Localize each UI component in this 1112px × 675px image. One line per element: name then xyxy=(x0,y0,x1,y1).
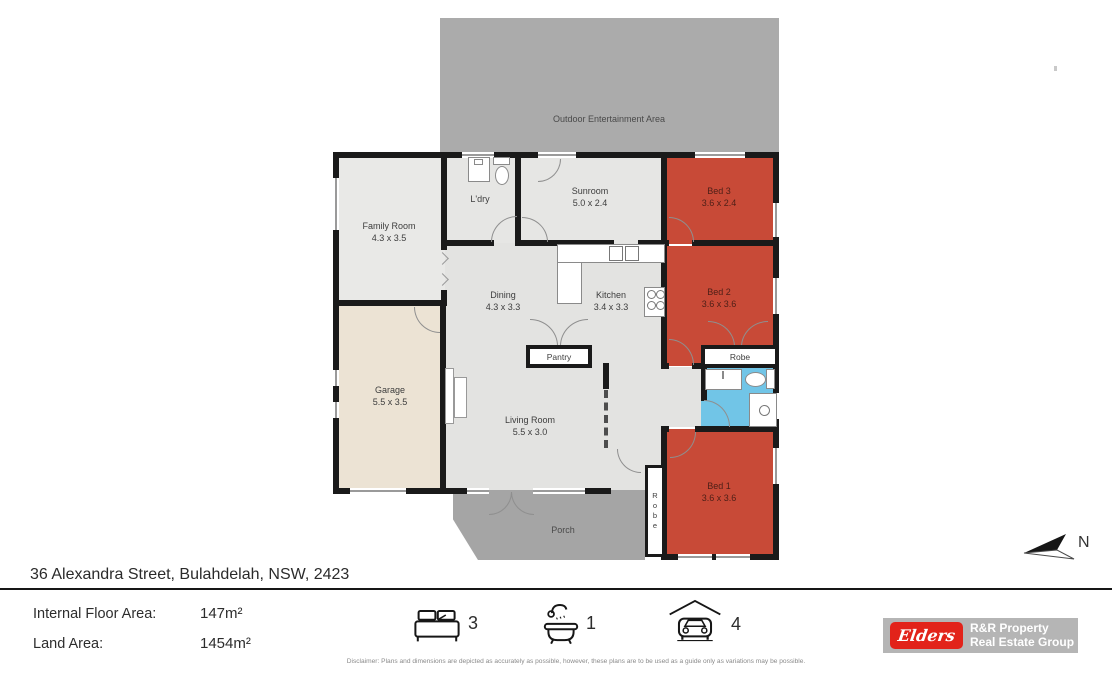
stove-burner-icon xyxy=(647,290,656,299)
stove-burner-icon xyxy=(656,290,665,299)
internal-floor-area-value: 147m² xyxy=(200,605,243,622)
robe-strip-bed1: Robe xyxy=(645,465,665,557)
bath-count: 1 xyxy=(586,613,596,634)
dashed-opening xyxy=(604,390,608,448)
wall-segment xyxy=(441,290,447,306)
pantry-label: Pantry xyxy=(547,352,572,362)
window xyxy=(773,278,779,314)
toilet-icon xyxy=(745,372,766,387)
artifact-dot xyxy=(1054,66,1057,71)
divider-line xyxy=(0,588,1112,590)
room-label-bed3: Bed 33.6 x 2.4 xyxy=(702,185,737,209)
kitchen-sink-icon xyxy=(609,246,623,261)
window xyxy=(716,554,750,560)
bath-icon xyxy=(543,600,579,646)
room-porch xyxy=(453,490,645,560)
pantry-box: Pantry xyxy=(526,345,592,368)
room-label-sunroom: Sunroom5.0 x 2.4 xyxy=(572,185,609,209)
land-area-value: 1454m² xyxy=(200,635,251,652)
window xyxy=(695,152,745,158)
window xyxy=(533,488,585,494)
robe-label: Robe xyxy=(730,352,750,362)
toilet-icon xyxy=(493,157,510,165)
room-label-laundry: L'dry xyxy=(470,193,489,205)
wall-segment xyxy=(603,363,609,389)
room-outdoor-entertainment xyxy=(440,18,779,154)
fireplace xyxy=(454,377,467,418)
window xyxy=(333,178,339,230)
wall-segment xyxy=(661,152,667,246)
window xyxy=(538,152,576,158)
elders-logo: Elders R&R Property Real Estate Group xyxy=(883,618,1078,653)
address: 36 Alexandra Street, Bulahdelah, NSW, 24… xyxy=(30,566,349,584)
north-arrow-icon xyxy=(1022,528,1080,562)
agency-name-line1: R&R Property xyxy=(970,621,1049,635)
agency-name-line2: Real Estate Group xyxy=(970,635,1074,649)
car-count: 4 xyxy=(731,614,741,635)
wall-segment xyxy=(585,488,611,494)
room-label-living: Living Room5.5 x 3.0 xyxy=(505,414,555,438)
stove-burner-icon xyxy=(656,301,665,310)
stove-burner-icon xyxy=(647,301,656,310)
wall-segment xyxy=(445,488,467,494)
floor-plan-page: Pantry Robe Robe Outdoor Entertainment A… xyxy=(0,0,1112,675)
north-label: N xyxy=(1078,534,1090,552)
window xyxy=(773,203,779,237)
vanity-tap-icon xyxy=(722,371,724,379)
room-label-family: Family Room4.3 x 3.5 xyxy=(362,220,415,244)
toilet-icon xyxy=(766,369,775,389)
bed-count: 3 xyxy=(468,613,478,634)
window xyxy=(350,488,406,494)
fireplace xyxy=(445,368,454,424)
wall-segment xyxy=(441,240,494,246)
internal-floor-area-label: Internal Floor Area: xyxy=(33,606,156,622)
kitchen-bench xyxy=(557,262,582,304)
window xyxy=(333,370,339,386)
room-label-porch: Porch xyxy=(551,524,575,536)
bed-icon xyxy=(413,608,461,646)
window xyxy=(467,488,489,494)
disclaimer: Disclaimer: Plans and dimensions are dep… xyxy=(340,658,812,665)
compass: N xyxy=(1022,528,1102,564)
car-icon xyxy=(668,598,722,646)
room-label-bed2: Bed 23.6 x 3.6 xyxy=(702,286,737,310)
wall-segment xyxy=(333,300,445,306)
robe-vertical-label: Robe xyxy=(651,491,660,531)
window xyxy=(678,554,712,560)
shower-drain-icon xyxy=(759,405,770,416)
window xyxy=(333,402,339,418)
room-label-garage: Garage5.5 x 3.5 xyxy=(373,384,408,408)
kitchen-sink-icon xyxy=(625,246,639,261)
laundry-tub-icon xyxy=(474,159,483,165)
window xyxy=(773,448,779,484)
wall-segment xyxy=(661,363,669,369)
room-label-kitchen: Kitchen3.4 x 3.3 xyxy=(594,289,629,313)
elders-wordmark: Elders xyxy=(890,622,963,649)
toilet-icon xyxy=(495,166,509,185)
land-area-label: Land Area: xyxy=(33,636,103,652)
wall-segment xyxy=(692,240,779,246)
room-label-dining: Dining4.3 x 3.3 xyxy=(486,289,521,313)
room-label-bed1: Bed 13.6 x 3.6 xyxy=(702,480,737,504)
robe-box-bed2: Robe xyxy=(701,345,779,368)
wall-segment xyxy=(333,306,339,494)
wall-segment xyxy=(441,152,447,250)
room-label-outdoor: Outdoor Entertainment Area xyxy=(553,113,665,125)
